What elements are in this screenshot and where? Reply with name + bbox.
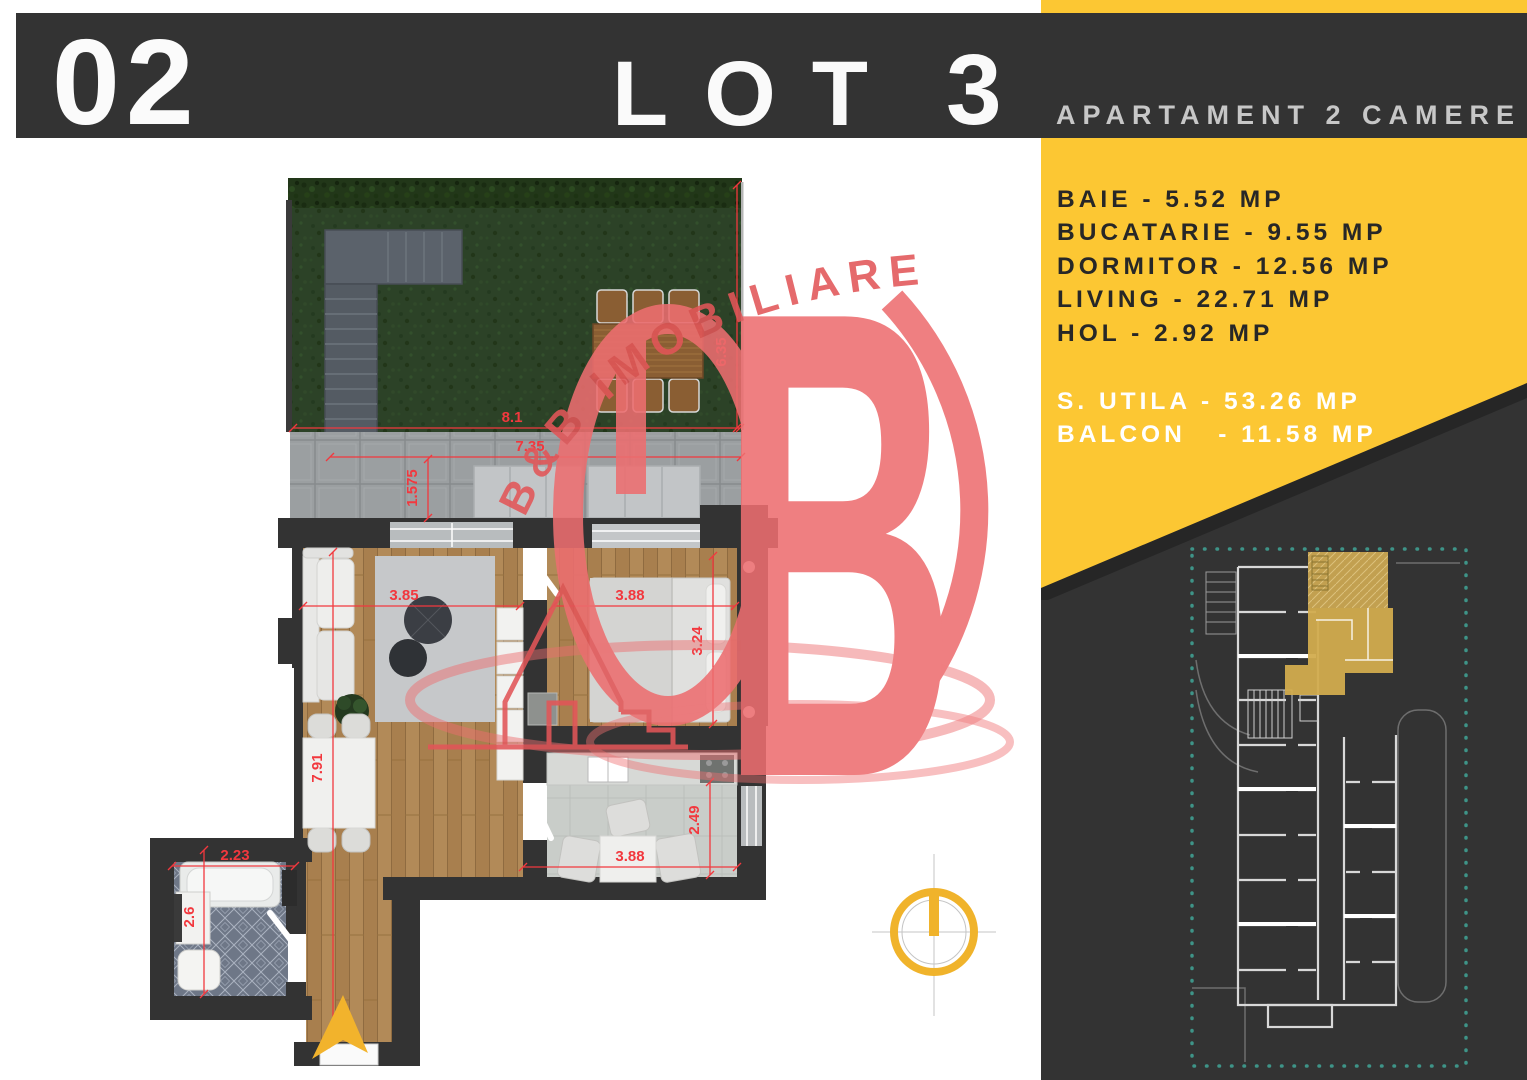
dim-garden-width: 8.1 (502, 409, 523, 426)
bedroom-window (592, 524, 700, 548)
hall-cabinet (528, 693, 557, 725)
site-stairs (1206, 572, 1236, 634)
floor-plan: 8.1 7.35 6.35 1.575 3.85 3.88 7.91 3.24 … (0, 0, 1040, 1080)
dim-kitchen-depth: 2.49 (686, 805, 703, 834)
dim-terrace-depth: 1.575 (404, 469, 421, 507)
toilet (178, 950, 220, 990)
dim-living-width: 3.85 (389, 587, 418, 604)
dim-bedroom-width: 3.88 (615, 587, 644, 604)
dim-bath-depth: 2.6 (181, 907, 198, 928)
garden-left-wall (286, 200, 292, 432)
sofa (303, 548, 354, 702)
highlighted-unit (1285, 552, 1393, 695)
brochure-page: { "header": { "number": "02", "title_wor… (0, 0, 1527, 1080)
dim-kitchen-width: 3.88 (615, 848, 644, 865)
hedge (288, 178, 742, 208)
site-core (1248, 690, 1318, 738)
coffee-table-small (389, 639, 427, 677)
bath-vanity (282, 870, 297, 906)
chair (654, 833, 701, 883)
dim-living-length: 7.91 (309, 753, 326, 782)
site-key-plan (1041, 0, 1527, 1080)
chair (557, 835, 602, 883)
dim-bath-width: 2.23 (220, 847, 249, 864)
